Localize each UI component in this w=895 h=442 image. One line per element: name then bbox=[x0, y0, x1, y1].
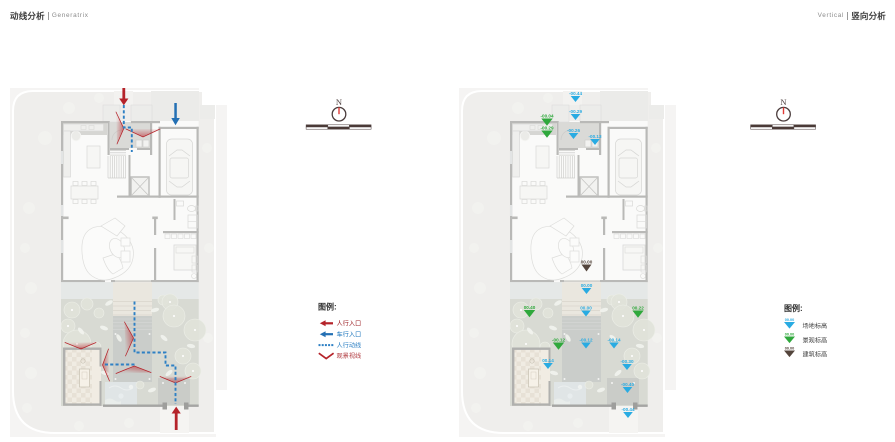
svg-text:景观标高: 景观标高 bbox=[803, 337, 828, 345]
svg-text:00.00: 00.00 bbox=[785, 333, 795, 337]
svg-text:图例:: 图例: bbox=[318, 302, 337, 312]
svg-text:N: N bbox=[336, 97, 342, 107]
svg-text:人行入口: 人行入口 bbox=[337, 320, 362, 328]
svg-text:图例:: 图例: bbox=[784, 303, 803, 313]
svg-text:车行入口: 车行入口 bbox=[337, 331, 362, 339]
svg-text:00.00: 00.00 bbox=[785, 347, 795, 351]
svg-text:观景视线: 观景视线 bbox=[337, 352, 362, 360]
svg-text:00.00: 00.00 bbox=[785, 318, 795, 322]
svg-text:场地标高: 场地标高 bbox=[803, 322, 828, 330]
svg-text:建筑标高: 建筑标高 bbox=[803, 351, 828, 359]
svg-text:人行动线: 人行动线 bbox=[337, 342, 362, 350]
svg-text:N: N bbox=[780, 97, 786, 107]
